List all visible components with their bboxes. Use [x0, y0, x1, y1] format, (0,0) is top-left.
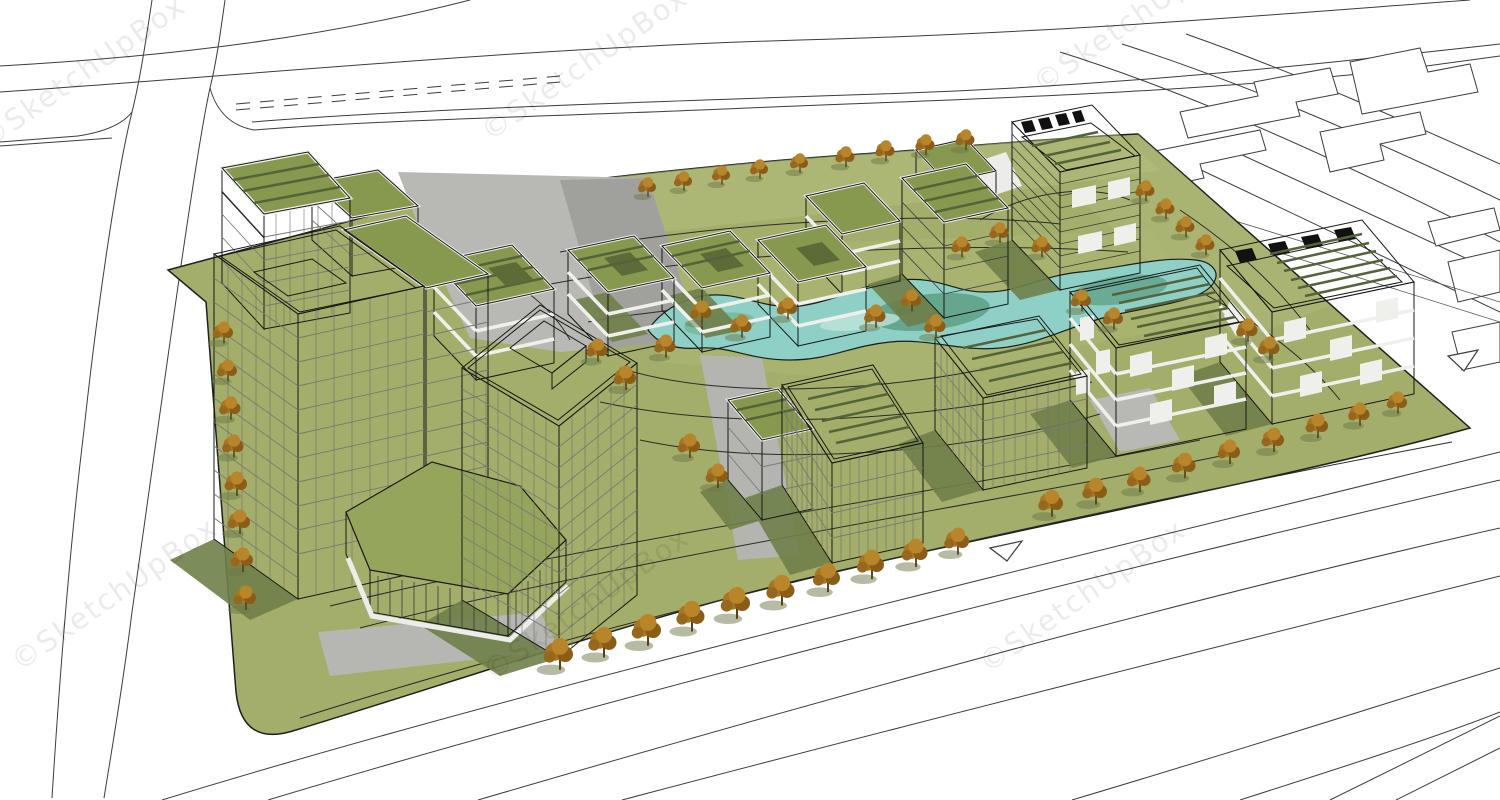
site-render-svg: ©SketchUpBox ©SketchUpBox ©SketchUpBox ©… [0, 0, 1500, 800]
watermark-text: ©SketchUpBox [475, 0, 695, 148]
watermark-text: ©SketchUpBox [5, 510, 225, 678]
turn-arrow-south [990, 541, 1022, 561]
watermark-text: ©SketchUpBox [973, 512, 1193, 680]
watermark-text: ©SketchUpBox [1027, 0, 1247, 100]
rendering-canvas: ©SketchUpBox ©SketchUpBox ©SketchUpBox ©… [0, 0, 1500, 800]
